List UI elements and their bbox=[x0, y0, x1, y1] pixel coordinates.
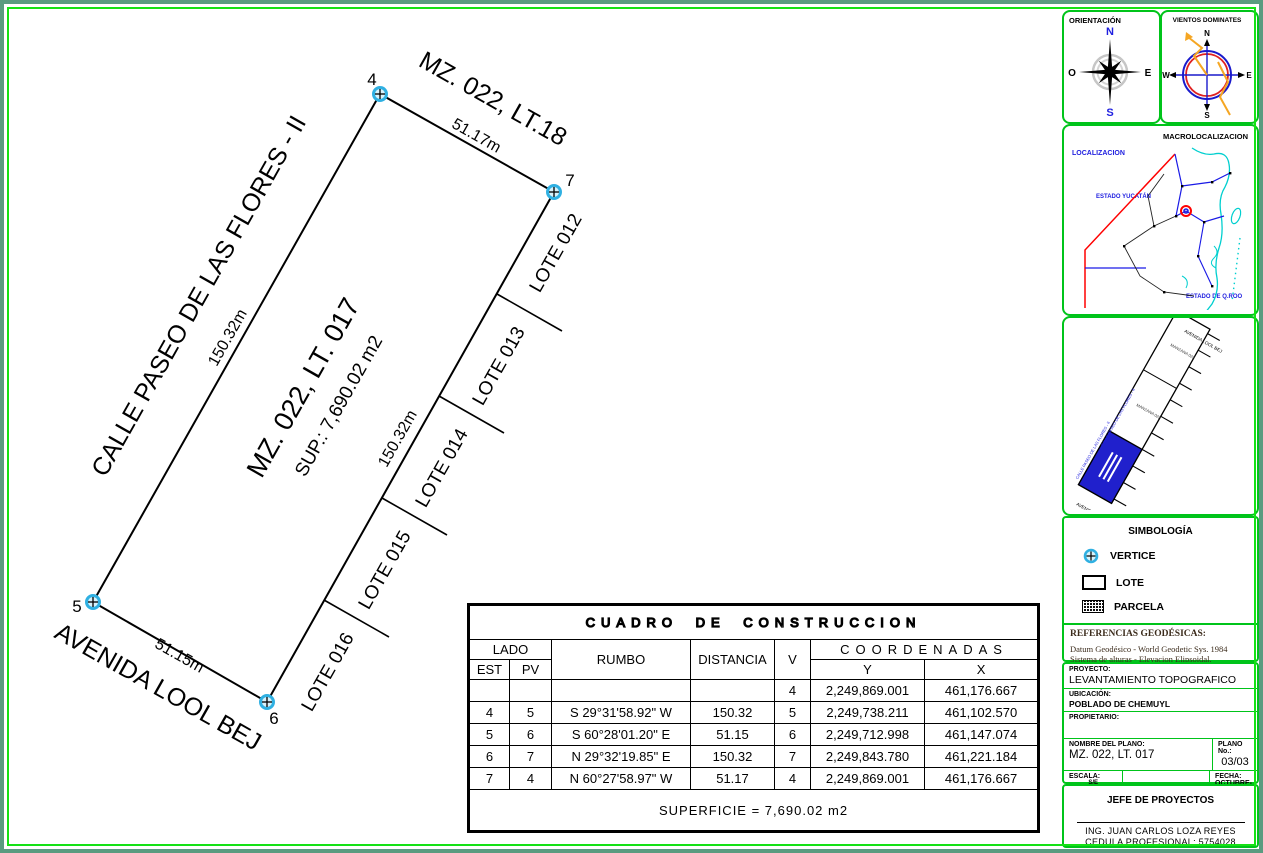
vertex-marker bbox=[374, 88, 387, 101]
dim-west: 150.32m bbox=[205, 307, 250, 370]
owner-row: PROPIETARIO: bbox=[1064, 712, 1257, 739]
lot-label: LOTE 014 bbox=[412, 425, 473, 511]
table-row: 56 S 60°28'01.20" E51.15 62,249,712.998 … bbox=[469, 724, 1039, 746]
macro-localization-panel: MACROLOCALIZACION LOCALIZACION ESTADO YU… bbox=[1062, 124, 1259, 316]
vertex-label-7: 7 bbox=[565, 171, 574, 190]
parcela-icon bbox=[1082, 600, 1104, 613]
owner-label: PROPIETARIO: bbox=[1069, 714, 1252, 721]
macro-yucatan-label: ESTADO YUCATÁN bbox=[1096, 193, 1151, 200]
micro-localization-panel: MANZANA 022 MANZANA 022 AVENIDA LOOL BEJ… bbox=[1062, 316, 1259, 516]
location-label: UBICACIÓN: bbox=[1069, 691, 1252, 698]
engineer-name: ING. JUAN CARLOS LOZA REYES bbox=[1064, 826, 1257, 836]
legend-label: LOTE bbox=[1116, 577, 1144, 589]
vertex-marker bbox=[261, 696, 274, 709]
header-lado: LADO bbox=[469, 640, 552, 660]
lot-label: LOTE 013 bbox=[469, 323, 530, 409]
block-strip: MANZANA 022 MANZANA 022 bbox=[1078, 318, 1222, 510]
lot-label: LOTE 016 bbox=[298, 629, 359, 715]
scale-label: ESCALA: bbox=[1069, 773, 1117, 780]
winds-panel: VIENTOS DOMINATES N S W E bbox=[1160, 10, 1259, 124]
location-row: UBICACIÓN: POBLADO DE CHEMUYL bbox=[1064, 689, 1257, 712]
date-label: FECHA: bbox=[1215, 773, 1252, 780]
compass-s: S bbox=[1106, 107, 1113, 118]
header-distancia: DISTANCIA bbox=[691, 640, 775, 680]
plan-name-label: NOMBRE DEL PLANO: bbox=[1069, 741, 1207, 748]
project-row: PROYECTO: LEVANTAMIENTO TOPOGRAFICO bbox=[1064, 664, 1257, 689]
signature-title: JEFE DE PROYECTOS bbox=[1064, 795, 1257, 806]
winds-title: VIENTOS DOMINATES bbox=[1173, 17, 1242, 24]
reference-line: Datum Geodésico - World Geodetic Sys. 19… bbox=[1070, 644, 1251, 654]
legend-item-vertice: VERTICE bbox=[1082, 547, 1257, 565]
compass-n: N bbox=[1106, 26, 1114, 38]
title-block-panel: PROYECTO: LEVANTAMIENTO TOPOGRAFICO UBIC… bbox=[1062, 662, 1259, 784]
signature-line bbox=[1077, 822, 1245, 823]
macro-localizacion-label: LOCALIZACION bbox=[1072, 150, 1125, 157]
header-rumbo: RUMBO bbox=[552, 640, 691, 680]
header-pv: PV bbox=[510, 660, 552, 680]
references-title: REFERENCIAS GEODÉSICAS: bbox=[1070, 629, 1251, 639]
project-label: PROYECTO: bbox=[1069, 666, 1252, 673]
symbology-title: SIMBOLOGÍA bbox=[1064, 526, 1257, 537]
orientation-panel: ORIENTACIÓN N S O E bbox=[1062, 10, 1161, 124]
compass-o: O bbox=[1068, 68, 1076, 79]
orientation-title: ORIENTACIÓN bbox=[1069, 16, 1121, 25]
legend-item-parcela: PARCELA bbox=[1082, 600, 1257, 613]
header-v: V bbox=[775, 640, 811, 680]
winds-s: S bbox=[1204, 111, 1210, 118]
legend-item-lote: LOTE bbox=[1082, 575, 1257, 590]
dim-north: 51.17m bbox=[449, 116, 504, 157]
superficie-row: SUPERFICIE = 7,690.02 m2 bbox=[469, 790, 1039, 832]
lot-label: LOTE 012 bbox=[526, 210, 587, 296]
vertex-label-4: 4 bbox=[367, 70, 376, 89]
professional-license: CEDULA PROFESIONAL: 5754028 bbox=[1064, 837, 1257, 847]
legend-label: VERTICE bbox=[1110, 550, 1156, 562]
legend-label: PARCELA bbox=[1114, 601, 1164, 613]
compass-e: E bbox=[1145, 68, 1152, 79]
winds-w: W bbox=[1162, 71, 1170, 80]
winds-diagram-icon bbox=[1169, 32, 1245, 115]
header-coordenadas: COORDENADAS bbox=[811, 640, 1039, 660]
macro-map-icon bbox=[1085, 148, 1242, 310]
vertice-icon bbox=[1082, 547, 1100, 565]
vertex-label-5: 5 bbox=[72, 597, 81, 616]
vertex-marker bbox=[87, 596, 100, 609]
lote-icon bbox=[1082, 575, 1106, 590]
compass-rose-icon bbox=[1079, 39, 1141, 105]
winds-n: N bbox=[1204, 29, 1210, 38]
plan-name-row: NOMBRE DEL PLANO: MZ. 022, LT. 017 PLANO… bbox=[1064, 739, 1257, 771]
micro-street-bottom: AVENIDA LOOL BEJ bbox=[1076, 502, 1116, 510]
plan-number-value: 03/03 bbox=[1218, 756, 1252, 768]
construction-table: CUADRO DE CONSTRUCCION LADO RUMBO DISTAN… bbox=[467, 603, 1038, 830]
plan-name-value: MZ. 022, LT. 017 bbox=[1069, 749, 1207, 761]
table-row: 67 N 29°32'19.85" E150.32 72,249,843.780… bbox=[469, 746, 1039, 768]
vertex-marker bbox=[548, 186, 561, 199]
table-row: 45 S 29°31'58.92" W150.32 52,249,738.211… bbox=[469, 702, 1039, 724]
header-est: EST bbox=[469, 660, 510, 680]
lot-label: LOTE 015 bbox=[355, 527, 416, 613]
project-value: LEVANTAMIENTO TOPOGRAFICO bbox=[1069, 674, 1252, 686]
table-title: CUADRO DE CONSTRUCCION bbox=[469, 605, 1039, 640]
signature-panel: JEFE DE PROYECTOS ING. JUAN CARLOS LOZA … bbox=[1062, 784, 1259, 848]
plan-number-label: PLANO No.: bbox=[1218, 741, 1252, 755]
header-x: X bbox=[925, 660, 1039, 680]
macro-title: MACROLOCALIZACION bbox=[1163, 132, 1248, 141]
symbology-panel: SIMBOLOGÍA VERTICE LOTE PARCELA REFERENC… bbox=[1062, 516, 1259, 662]
table-row: 42,249,869.001 461,176.667 bbox=[469, 680, 1039, 702]
table-row: 74 N 60°27'58.97" W51.17 42,249,869.001 … bbox=[469, 768, 1039, 790]
winds-e: E bbox=[1246, 71, 1252, 80]
dim-south: 51.15m bbox=[152, 636, 207, 677]
location-value: POBLADO DE CHEMUYL bbox=[1069, 699, 1252, 709]
vertex-label-6: 6 bbox=[269, 709, 278, 728]
header-y: Y bbox=[811, 660, 925, 680]
